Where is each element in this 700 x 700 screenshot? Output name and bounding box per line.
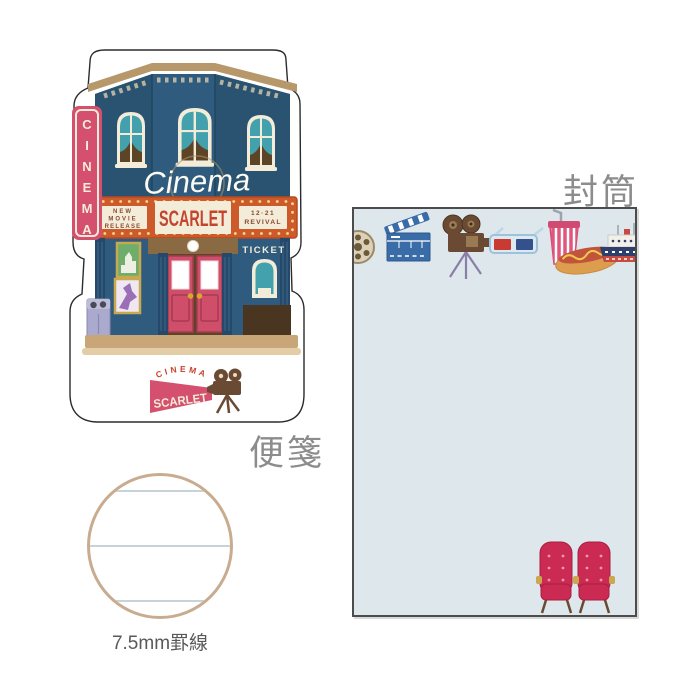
marquee-right-line1: 12·21 <box>251 210 275 217</box>
window-left <box>115 112 147 168</box>
window-right <box>245 115 277 171</box>
product-photo: Cinema NEW MOVIE RELEASE SCARLET 12·21 R… <box>0 0 700 700</box>
door-knob-right <box>197 293 203 299</box>
booth-counter <box>243 305 291 335</box>
vertical-sign-letter: M <box>82 201 93 216</box>
trash-can <box>87 299 110 338</box>
vertical-sign-letter: N <box>82 159 91 174</box>
ruling-label: 7.5mm罫線 <box>80 628 240 655</box>
envelope-artwork <box>354 209 635 615</box>
sidewalk <box>85 335 298 348</box>
entrance-lamp <box>188 241 199 252</box>
vertical-sign-letter: C <box>82 117 92 132</box>
letter-paper-card: Cinema NEW MOVIE RELEASE SCARLET 12·21 R… <box>60 42 305 430</box>
ruling-detail-circle <box>87 473 233 619</box>
ruled-line <box>90 545 230 547</box>
cinema-vertical-sign: C I N E M A <box>72 106 102 240</box>
cinema-script-sign: Cinema <box>143 162 251 201</box>
ruled-line <box>90 600 230 602</box>
ticket-sign: TICKET <box>242 245 285 256</box>
film-reel-icon <box>354 231 374 263</box>
marquee: NEW MOVIE RELEASE SCARLET 12·21 REVIVAL <box>90 197 297 238</box>
ticket-window <box>252 259 277 298</box>
marquee-left-line1: NEW <box>113 209 133 215</box>
door-knob-left <box>188 293 194 299</box>
vertical-sign-letter: E <box>83 180 92 195</box>
envelope-label: 封筒 <box>563 164 639 215</box>
marquee-right-line2: REVIVAL <box>244 219 281 226</box>
poster-purple <box>115 279 140 313</box>
boat-icon <box>600 223 635 262</box>
envelope <box>352 207 637 617</box>
vertical-sign-letter: I <box>85 138 89 153</box>
sidewalk-curb <box>82 348 301 355</box>
clapperboard-icon <box>384 211 430 261</box>
3d-glasses-icon <box>490 228 543 253</box>
letter-paper-label: 便箋 <box>249 425 325 476</box>
cinema-seats-icon <box>536 542 615 613</box>
vertical-sign-letter: A <box>82 222 92 237</box>
marquee-left-line2: MOVIE <box>108 217 137 223</box>
movie-camera-icon <box>443 215 491 279</box>
ruled-line <box>90 490 230 492</box>
marquee-title: SCARLET <box>159 206 227 231</box>
marquee-left-line3: RELEASE <box>105 224 142 230</box>
poster-green <box>117 243 140 277</box>
